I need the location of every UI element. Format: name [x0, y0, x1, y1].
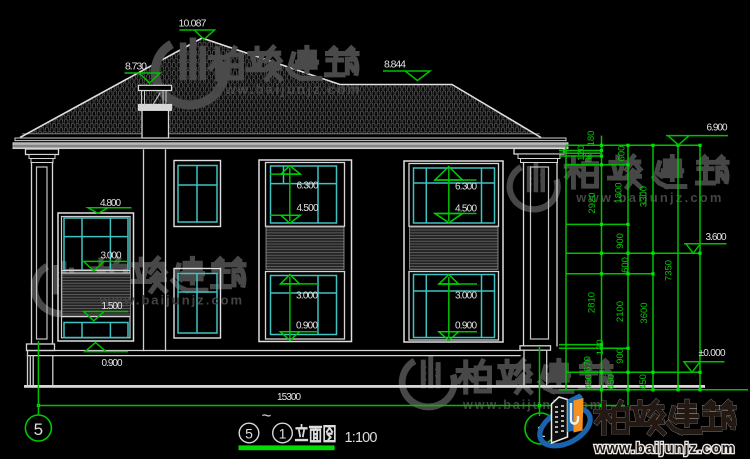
svg-text:180: 180 [586, 131, 597, 147]
svg-text:1.500: 1.500 [102, 301, 123, 312]
svg-text:3.000: 3.000 [101, 251, 122, 262]
svg-text:6.900: 6.900 [707, 123, 728, 134]
svg-text:670: 670 [583, 356, 594, 372]
svg-text:900: 900 [615, 233, 626, 249]
svg-text:450: 450 [638, 374, 649, 390]
svg-text:5: 5 [245, 426, 253, 442]
svg-text:6.300: 6.300 [455, 182, 477, 193]
svg-text:www.baijunjz.com: www.baijunjz.com [593, 441, 735, 457]
svg-text:2100: 2100 [615, 301, 626, 322]
svg-text:600: 600 [617, 146, 628, 162]
svg-text:5: 5 [34, 420, 43, 439]
svg-text:450: 450 [584, 374, 595, 390]
svg-text:6.300: 6.300 [297, 181, 319, 192]
svg-text:1:100: 1:100 [345, 430, 378, 446]
svg-text:2810: 2810 [587, 292, 598, 313]
svg-text:15300: 15300 [277, 392, 301, 403]
svg-text:1800: 1800 [614, 182, 625, 203]
svg-text:4.500: 4.500 [297, 203, 319, 214]
svg-text:~: ~ [262, 406, 272, 425]
svg-text:7350: 7350 [664, 260, 675, 281]
svg-text:3600: 3600 [639, 302, 650, 323]
svg-text:10.087: 10.087 [179, 18, 207, 30]
svg-text:80: 80 [584, 152, 595, 163]
svg-text:1: 1 [279, 426, 287, 442]
svg-text:3.000: 3.000 [296, 291, 318, 302]
svg-text:0.900: 0.900 [455, 321, 477, 332]
svg-text:8.730: 8.730 [125, 61, 147, 73]
svg-text:3.600: 3.600 [706, 232, 727, 243]
svg-text:0.900: 0.900 [296, 321, 318, 332]
svg-text:450: 450 [606, 374, 617, 390]
svg-text:2920: 2920 [587, 192, 598, 213]
svg-text:0.900: 0.900 [102, 358, 123, 369]
svg-text:±0.000: ±0.000 [699, 348, 726, 359]
svg-text:900: 900 [615, 348, 626, 364]
svg-text:3.000: 3.000 [455, 291, 477, 302]
svg-text:600: 600 [620, 257, 631, 273]
svg-text:4.500: 4.500 [455, 204, 477, 215]
svg-text:120: 120 [595, 339, 606, 355]
svg-text:3300: 3300 [639, 186, 650, 207]
svg-text:www.baijunjz.com: www.baijunjz.com [212, 82, 362, 97]
svg-text:8.844: 8.844 [384, 59, 406, 71]
